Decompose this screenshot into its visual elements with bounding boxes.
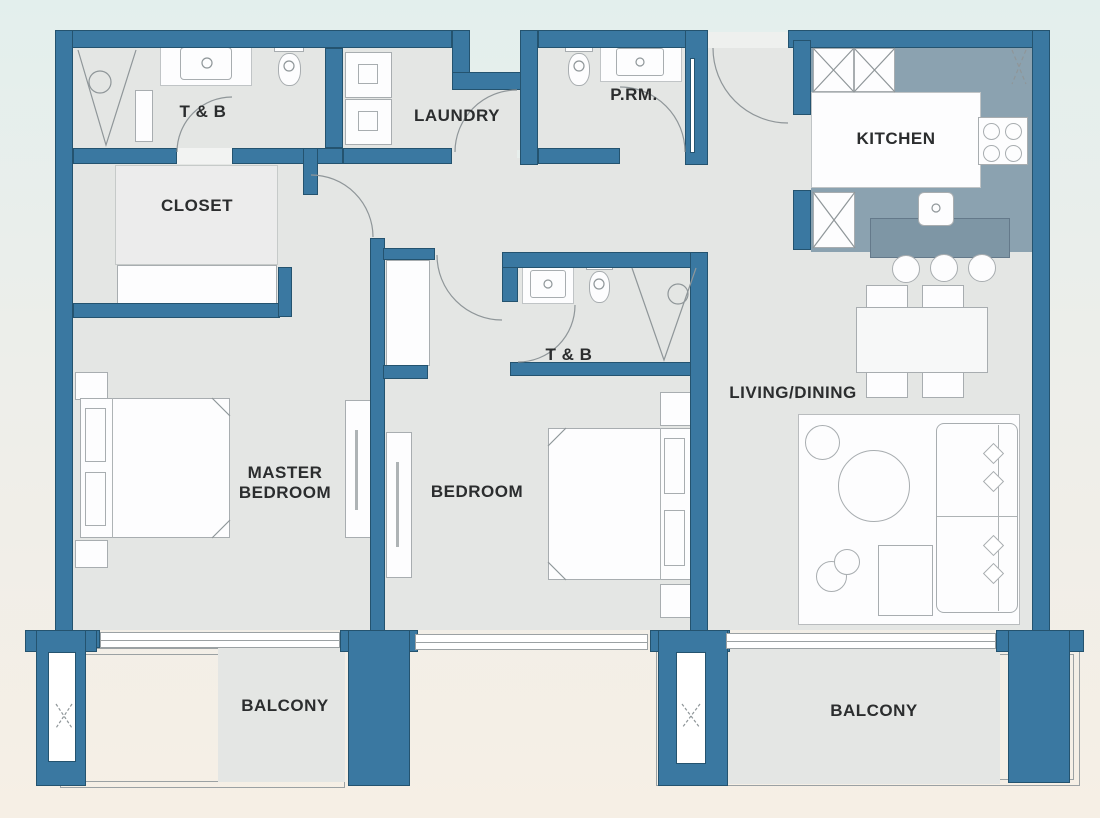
prm-door-threshold	[620, 148, 685, 164]
bedroom-bed-line	[660, 428, 661, 580]
room-label-living: LIVING/DINING	[703, 383, 883, 403]
stove-burner	[983, 145, 1000, 162]
room-label-master-line1: MASTER	[210, 463, 360, 483]
washer-detail	[358, 64, 378, 84]
column-1-shaft	[48, 652, 76, 762]
living-balcony-slider	[726, 633, 996, 649]
wall-kitchen-stub-bottom	[793, 190, 811, 250]
room-label-kitchen: KITCHEN	[821, 129, 971, 149]
wall-bedroom-stub-bottom	[383, 365, 428, 379]
bedroom-wardrobe	[386, 260, 430, 366]
master-nightstand	[75, 540, 108, 568]
wall-living-left	[690, 252, 708, 648]
floor-plan: T & B CLOSET LAUNDRY P.RM. KITCHEN T & B…	[0, 0, 1100, 818]
room-label-balcony-right: BALCONY	[799, 701, 949, 721]
tb1-door-threshold	[177, 148, 232, 164]
wall-tb1-bottom-left	[73, 148, 177, 164]
sofa	[936, 423, 1018, 613]
entry-floor	[708, 48, 793, 160]
stove-burner	[1005, 123, 1022, 140]
bedroom-window	[415, 634, 648, 650]
column-3-shaft	[676, 652, 706, 764]
room-label-balcony-left: BALCONY	[210, 696, 360, 716]
prm-sink	[616, 48, 664, 76]
bedroom-tv-console	[386, 432, 412, 578]
tb2-sink	[530, 270, 566, 298]
room-label-bedroom: BEDROOM	[402, 482, 552, 502]
dryer-detail	[358, 111, 378, 131]
bar-stool	[892, 255, 920, 283]
master-bed-line	[112, 398, 113, 538]
bar-stool	[968, 254, 996, 282]
side-table	[878, 545, 933, 616]
island-sink	[918, 192, 954, 226]
entry-door-threshold	[708, 32, 788, 48]
room-label-tb1: T & B	[148, 102, 258, 122]
wall-closet-bottom	[73, 303, 280, 318]
wall-hall-stub	[303, 148, 318, 195]
wall-left	[55, 30, 73, 648]
bedroom-pillow	[664, 438, 685, 494]
column-4-body	[1008, 630, 1070, 783]
tb1-toilet-bowl	[278, 53, 301, 86]
dining-table	[856, 307, 988, 373]
wall-right	[1032, 30, 1050, 648]
room-label-laundry: LAUNDRY	[382, 106, 532, 126]
master-balcony-slider	[100, 632, 340, 648]
kitchen-shaft-2	[854, 48, 895, 92]
wall-tb1-bottom-right	[232, 148, 343, 164]
entry-door-frame	[690, 58, 695, 153]
room-label-tb2: T & B	[509, 345, 629, 365]
stove-burner	[1005, 145, 1022, 162]
wall-top-right	[788, 30, 1050, 48]
coffee-table-large	[838, 450, 910, 522]
coffee-table-small	[805, 425, 840, 460]
room-label-closet: CLOSET	[122, 196, 272, 216]
kitchen-shaft-3	[813, 192, 855, 248]
wall-kitchen-stub-top	[793, 40, 811, 115]
wall-master-bedroom-divider	[370, 238, 385, 648]
room-label-master-line2: BEDROOM	[210, 483, 360, 503]
master-nightstand	[75, 372, 108, 400]
pouf	[834, 549, 860, 575]
wall-top-left	[62, 30, 452, 48]
wall-prm-bottom	[538, 148, 620, 164]
bedroom-tv	[396, 462, 399, 547]
closet-dresser	[117, 265, 277, 305]
wall-top-mid	[538, 30, 708, 48]
room-label-master: MASTER BEDROOM	[210, 463, 360, 504]
kitchen-shaft-1	[813, 48, 854, 92]
wall-closet-stub	[278, 267, 292, 317]
wall-bedroom-stub-top	[383, 248, 435, 260]
stove-burner	[983, 123, 1000, 140]
tb1-sink	[180, 47, 232, 80]
wall-laundry-bottom	[343, 148, 452, 164]
laundry-door-threshold	[452, 148, 517, 164]
room-label-prm: P.RM.	[574, 85, 694, 105]
bar-stool	[930, 254, 958, 282]
bedroom-pillow	[664, 510, 685, 566]
wall-prm-left	[520, 30, 538, 165]
master-pillow	[85, 408, 106, 462]
wall-tb2-top	[502, 252, 708, 268]
master-pillow	[85, 472, 106, 526]
prm-toilet-bowl	[568, 53, 590, 86]
sofa-seat-line	[937, 516, 1017, 517]
tb2-toilet-bowl	[589, 271, 610, 303]
wall-tb1-laundry	[325, 48, 343, 148]
